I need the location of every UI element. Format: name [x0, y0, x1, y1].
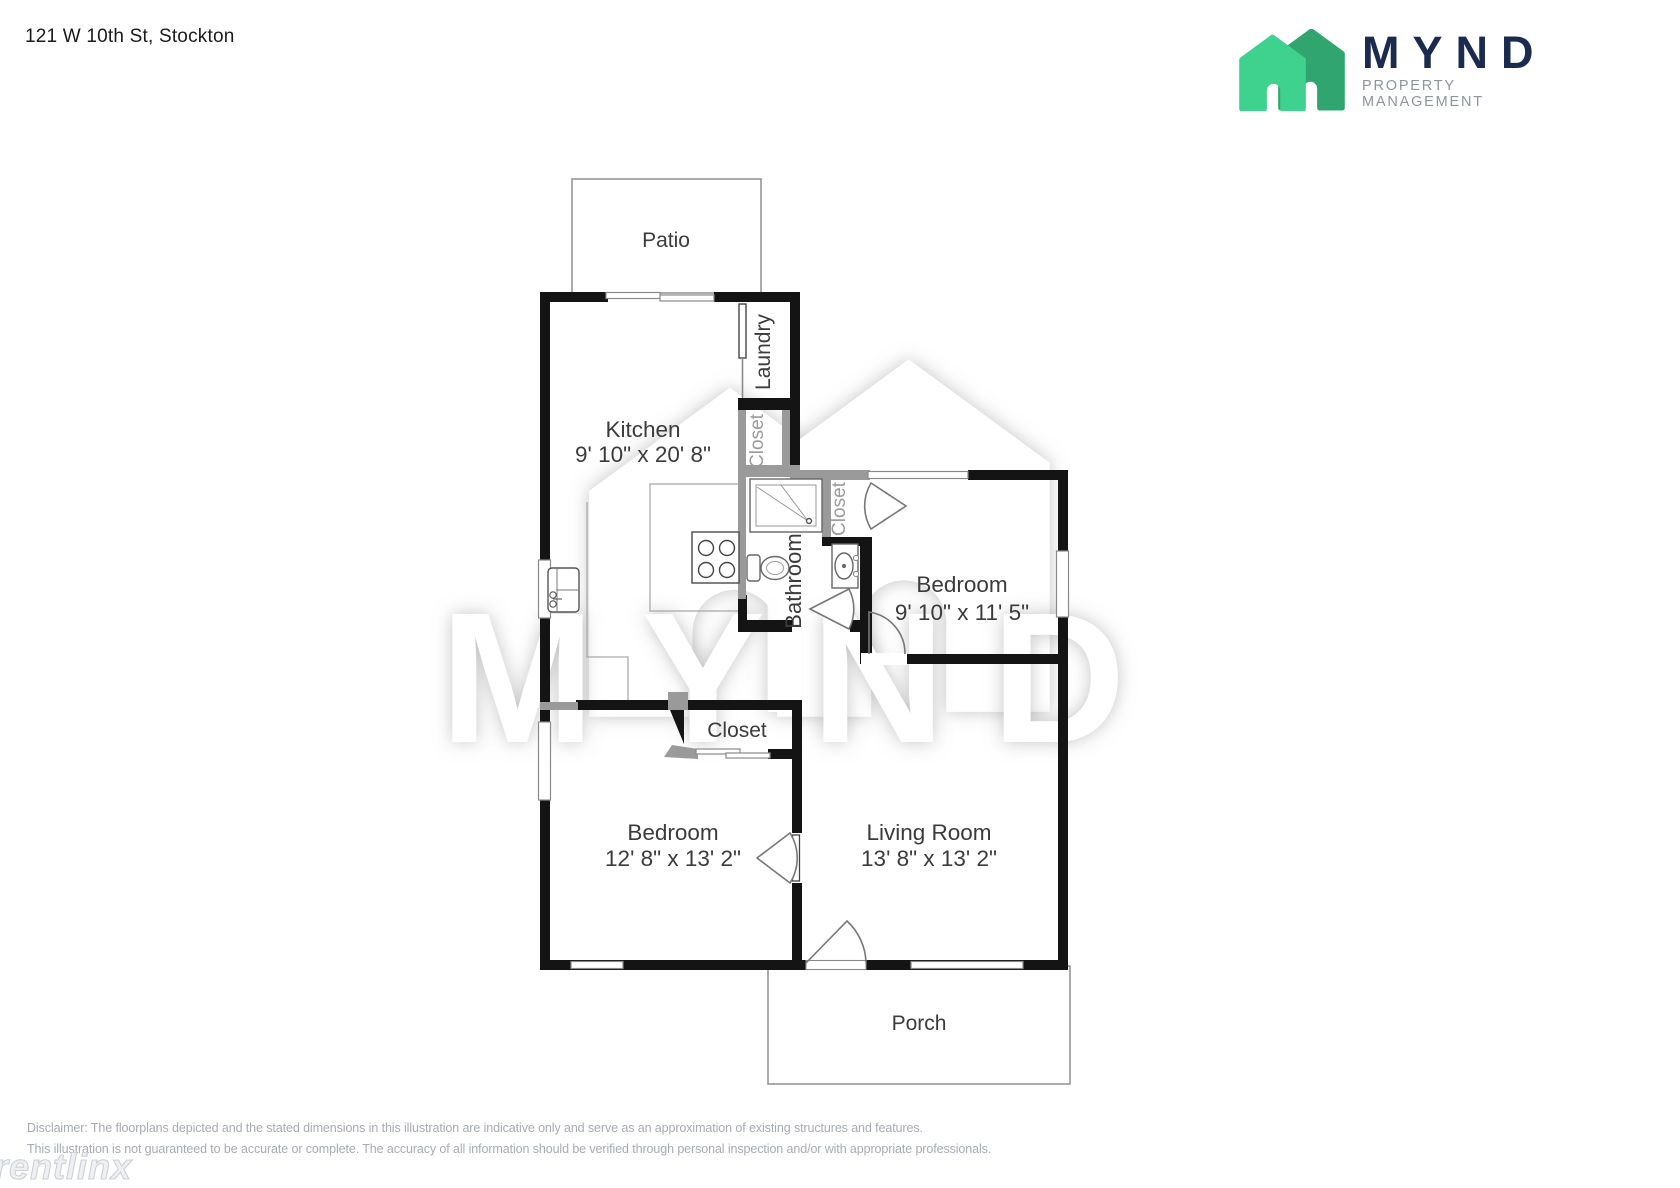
room-label-laundry: Laundry [752, 314, 775, 390]
rentlinx-watermark: rentlinx [0, 1146, 132, 1188]
laundry-door-leaf [739, 304, 746, 358]
room-dims-bedroom1: 9' 10" x 11' 5" [895, 600, 1029, 625]
room-label-bathroom: Bathroom [781, 533, 806, 628]
room-label-bedroom2: Bedroom [627, 820, 718, 845]
front-door [806, 921, 866, 963]
room-label-living-room: Living Room [866, 820, 991, 845]
kitchen-sink [548, 568, 579, 612]
disclaimer-line-1: Disclaimer: The floorplans depicted and … [27, 1121, 923, 1135]
closet-door-jamb [670, 710, 684, 744]
bedroom1-top-window [868, 472, 968, 479]
bedroom2-bottom-window [571, 962, 623, 969]
bathroom-door [810, 589, 854, 629]
room-dims-living-room: 13' 8" x 13' 2" [861, 846, 997, 871]
patio-slider-a [606, 293, 660, 299]
hall-closet-slider-b [726, 753, 770, 758]
shower [750, 479, 822, 532]
stove [692, 532, 739, 583]
bedroom2-side-window [539, 722, 551, 800]
room-label-bedroom1: Bedroom [916, 572, 1007, 597]
room-label-closet-bedroom1: Closet [829, 481, 850, 536]
floorplan-page: 121 W 10th St, Stockton MYND PROPERTY MA… [0, 0, 1680, 1188]
kitchen-counters [587, 484, 741, 700]
bedroom1-right-window [1057, 551, 1069, 617]
room-dims-kitchen: 9' 10" x 20' 8" [575, 442, 711, 467]
floorplan-svg: Patio Kitchen 9' 10" x 20' 8" Laundry Cl… [0, 0, 1680, 1188]
disclaimer-line-2: This illustration is not guaranteed to b… [27, 1142, 991, 1156]
room-label-patio: Patio [642, 229, 690, 252]
patio-slider-b [660, 295, 714, 301]
room-label-porch: Porch [892, 1012, 947, 1035]
room-dims-bedroom2: 12' 8" x 13' 2" [605, 846, 741, 871]
bedroom2-door [757, 833, 797, 883]
living-room-window [911, 962, 1023, 969]
bedroom1-closet-door [865, 483, 906, 529]
fixtures [548, 479, 859, 612]
room-label-closet-hall: Closet [707, 719, 767, 742]
room-labels: Patio Kitchen 9' 10" x 20' 8" Laundry Cl… [575, 229, 1029, 1035]
room-label-closet-laundry: Closet [747, 413, 768, 468]
vanity-sink [832, 544, 859, 588]
room-label-kitchen: Kitchen [605, 417, 680, 442]
